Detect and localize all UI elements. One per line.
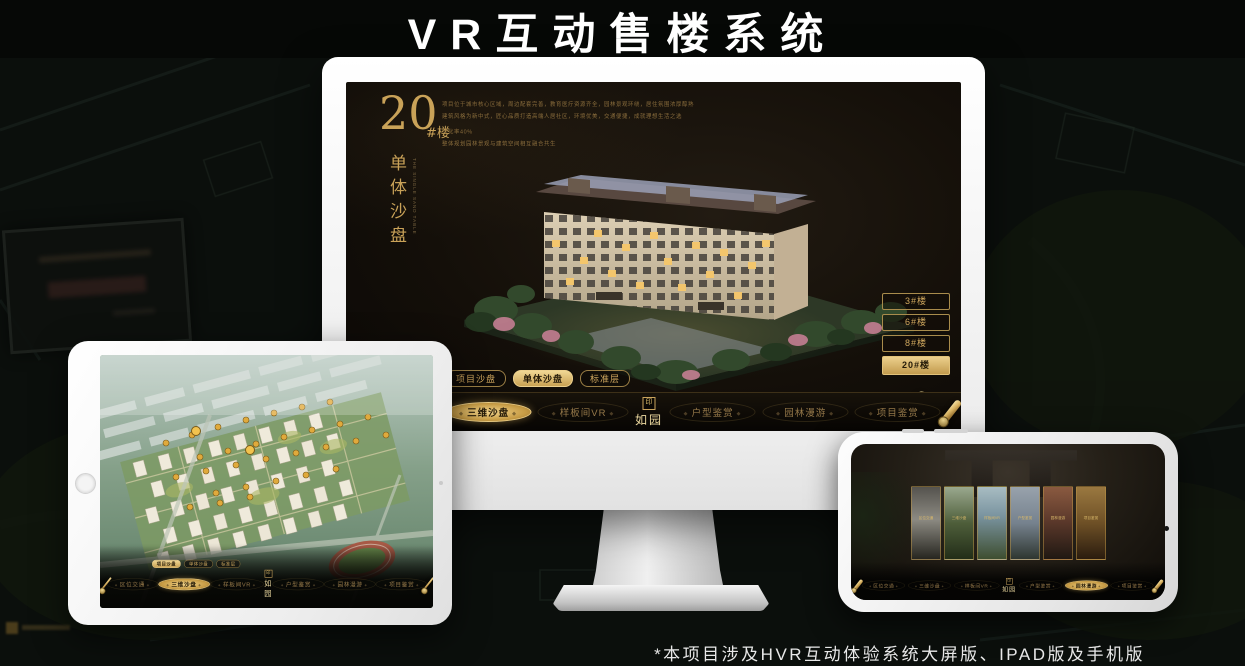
brand-seal-icon: 印	[264, 570, 272, 578]
gallery-card-label: 区位交通	[919, 515, 933, 520]
gallery-card-label: 园林漫游	[1051, 515, 1065, 520]
gallery-card-4[interactable]: 园林漫游	[1043, 486, 1073, 560]
nav-item-2[interactable]: 样板间VR	[209, 578, 263, 590]
phone-volume-button	[902, 429, 924, 433]
brand-logo: 印如园	[264, 570, 272, 599]
brand-seal-icon: 印	[643, 397, 656, 410]
nav-item-3[interactable]: 户型鉴赏	[272, 578, 324, 590]
nav-item-3[interactable]: 户型鉴赏	[670, 402, 756, 422]
brand-logo-text: 如园	[635, 411, 663, 428]
phone-card-gallery: 区位交通三维沙盘样板间VR户型鉴赏园林漫游项目鉴赏	[911, 486, 1106, 560]
gallery-card-0[interactable]: 区位交通	[911, 486, 941, 560]
gallery-card-1[interactable]: 三维沙盘	[944, 486, 974, 560]
phone-navbar: 区位交通三维沙盘样板间VR印如园户型鉴赏园林漫游项目鉴赏	[851, 566, 1165, 600]
block-subtitle: 单体沙盘	[384, 154, 409, 250]
gallery-card-label: 三维沙盘	[952, 515, 966, 520]
gallery-card-label: 样板间VR	[984, 515, 1000, 520]
gallery-card-3[interactable]: 户型鉴赏	[1010, 486, 1040, 560]
nav-item-0[interactable]: 区位交通	[106, 578, 158, 590]
brand-logo-text: 如园	[1002, 585, 1016, 594]
nav-item-1[interactable]: 三维沙盘	[158, 578, 210, 590]
gallery-card-label: 户型鉴赏	[1018, 515, 1032, 520]
nav-item-5[interactable]: 项目鉴赏	[855, 402, 941, 422]
block-subtitle-en: THE SINGLE SAND TABLE	[412, 158, 417, 235]
nav-item-4[interactable]: 园林漫游	[324, 578, 376, 590]
nav-item-3[interactable]: 户型鉴赏	[1019, 581, 1062, 591]
ipad-screen: 项目沙盘单体沙盘标准层 区位交通三维沙盘样板间VR印如园户型鉴赏园林漫游项目鉴赏	[100, 355, 433, 608]
nav-item-2[interactable]: 样板间VR	[538, 402, 629, 422]
nav-item-4[interactable]: 园林漫游	[762, 402, 848, 422]
brand-seal-icon: 印	[1006, 578, 1013, 585]
gallery-card-2[interactable]: 样板间VR	[977, 486, 1007, 560]
gallery-card-label: 项目鉴赏	[1084, 515, 1098, 520]
ipad-mockup: 项目沙盘单体沙盘标准层 区位交通三维沙盘样板间VR印如园户型鉴赏园林漫游项目鉴赏	[68, 341, 452, 625]
nav-item-0[interactable]: 区位交通	[862, 581, 905, 591]
floor-button-1[interactable]: 6#楼	[882, 314, 950, 331]
scroll-handle-icon[interactable]	[939, 399, 961, 425]
subtab-0[interactable]: 项目沙盘	[446, 370, 506, 387]
phone-power-button	[934, 429, 968, 433]
page-title: VR互动售楼系统	[0, 0, 1245, 62]
ipad-home-button[interactable]	[75, 473, 96, 494]
footnote: *本项目涉及HVR互动体验系统大屏版、IPAD版及手机版	[654, 640, 1145, 665]
description-line-2: 绿化率40%	[442, 126, 580, 138]
floor-button-3[interactable]: 20#楼	[882, 356, 950, 375]
brand-logo-text: 如园	[264, 578, 272, 598]
nav-item-5[interactable]: 项目鉴赏	[375, 578, 427, 590]
subtab-1[interactable]: 单体沙盘	[513, 370, 573, 387]
monitor-subtabs: 项目沙盘单体沙盘标准层	[446, 370, 630, 387]
phone-mockup: 区位交通三维沙盘样板间VR户型鉴赏园林漫游项目鉴赏 区位交通三维沙盘样板间VR印…	[838, 432, 1178, 612]
phone-screen: 区位交通三维沙盘样板间VR户型鉴赏园林漫游项目鉴赏 区位交通三维沙盘样板间VR印…	[851, 444, 1165, 600]
nav-item-2[interactable]: 样板间VR	[954, 581, 999, 591]
scroll-handle-icon[interactable]	[1153, 579, 1164, 592]
floor-button-group: 3#楼6#楼8#楼20#楼	[882, 293, 950, 375]
ipad-camera-icon	[439, 481, 443, 485]
subtab-2[interactable]: 标准层	[580, 370, 630, 387]
floor-button-2[interactable]: 8#楼	[882, 335, 950, 352]
nav-item-1[interactable]: 三维沙盘	[445, 402, 531, 422]
description-line-1: 建筑风格为新中式，匠心品质打造高端人居社区，环境优美，交通便捷，成就理想生活之选	[442, 110, 580, 122]
nav-item-1[interactable]: 三维沙盘	[908, 581, 951, 591]
ipad-navbar: 区位交通三维沙盘样板间VR印如园户型鉴赏园林漫游项目鉴赏	[100, 562, 433, 608]
background-plaque	[2, 218, 192, 354]
description-line-3: 整体规划园林景观与建筑空间相互融合共生	[442, 138, 580, 150]
gallery-card-5[interactable]: 项目鉴赏	[1076, 486, 1106, 560]
floor-button-0[interactable]: 3#楼	[882, 293, 950, 310]
description-line-0: 项目位于城市核心区域，周边配套完善，教育医疗资源齐全，园林景观环绕，居住氛围浓厚…	[442, 98, 580, 110]
block-description: 项目位于城市核心区域，周边配套完善，教育医疗资源齐全，园林景观环绕，居住氛围浓厚…	[442, 98, 580, 150]
nav-item-4[interactable]: 园林漫游	[1065, 581, 1108, 591]
brand-logo: 印如园	[635, 397, 663, 428]
nav-item-5[interactable]: 项目鉴赏	[1111, 581, 1154, 591]
stage: VR互动售楼系统 *本项目涉及HVR互动体验系统大屏版、IPAD版及手机版	[0, 0, 1245, 666]
brand-logo: 印如园	[1002, 578, 1016, 594]
